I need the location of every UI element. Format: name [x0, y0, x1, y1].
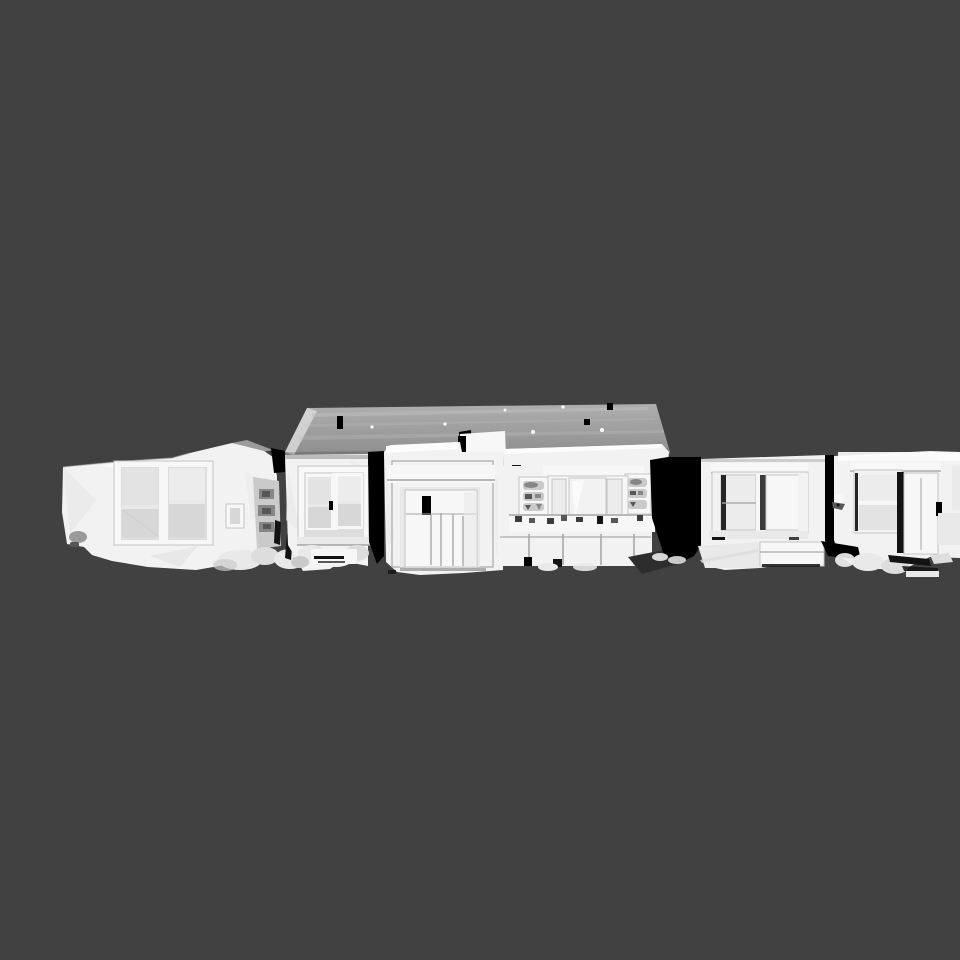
planter-mark [576, 517, 583, 522]
wall-top-edge [701, 459, 827, 462]
pane-dark-edge [760, 475, 766, 530]
door-shade [464, 492, 477, 567]
rubble [291, 556, 309, 568]
mesh-crevice [274, 520, 281, 545]
rubble [852, 553, 884, 571]
rubble [573, 563, 597, 571]
door-groove [430, 515, 432, 565]
window-sash-bar [122, 505, 158, 509]
rubble [906, 571, 939, 577]
shutter-ornament [630, 479, 642, 485]
door-window [422, 496, 431, 515]
shutter-ornament [524, 482, 538, 488]
door-groove [452, 514, 454, 566]
window-pane [169, 468, 205, 500]
window-pane [308, 477, 331, 504]
rubble [538, 563, 558, 571]
mesh-blob [69, 531, 87, 543]
wall-edge-piece [941, 461, 952, 508]
bench-seam [760, 551, 824, 553]
roof-vent-shadow [337, 416, 343, 429]
window-pane [766, 475, 799, 530]
bench [760, 542, 824, 566]
planter-mark [637, 515, 643, 521]
small-window-pane [230, 508, 240, 524]
door-groove [440, 513, 442, 566]
mesh-crevice [524, 557, 532, 566]
window-pane [859, 475, 897, 501]
planter-mark [529, 518, 535, 523]
door-groove [462, 516, 464, 566]
window-sidelight [607, 479, 622, 520]
right-house-2 [821, 451, 960, 577]
threshold-shadow [400, 568, 486, 571]
shutter-cutout [628, 500, 647, 509]
panel-seam [500, 536, 651, 538]
roof-speck [561, 405, 564, 408]
rubble [930, 553, 953, 564]
fascia-highlight [838, 452, 960, 461]
window-sidelight [552, 479, 566, 520]
rubble [668, 556, 686, 564]
bench-shadow [314, 556, 344, 559]
pane-dark-edge [855, 473, 858, 531]
right-house-1 [698, 455, 834, 570]
shutter-ornament [638, 491, 643, 495]
shutter-ornament [525, 494, 532, 499]
pane-hole [329, 501, 333, 510]
mesh-shadow [388, 570, 396, 574]
porch-lamp [834, 494, 844, 504]
roof-speck [370, 425, 373, 428]
panel-seam [562, 534, 564, 565]
planter-mark [515, 516, 522, 522]
entry-door-section [384, 431, 506, 575]
wall-edge-piece [938, 513, 960, 545]
rubble [652, 553, 668, 561]
window-pane [338, 476, 361, 501]
mesh-render [0, 0, 960, 960]
roof-speck [531, 430, 535, 434]
sill-shadow [712, 537, 725, 540]
window-pane [338, 504, 361, 526]
window-pane [308, 507, 331, 528]
window-sash-bar [722, 502, 756, 504]
window-sill [297, 537, 370, 545]
window-sash-bar [169, 500, 205, 504]
flower-box-edge [509, 514, 655, 516]
planter-mark [597, 516, 603, 524]
door-groove [920, 478, 922, 550]
roof-vent-shadow [584, 419, 590, 425]
shutter-ornament [535, 494, 541, 498]
debris-hole-dark [263, 524, 271, 529]
debris-hole-dark [262, 491, 270, 497]
shutter-ornament [630, 491, 636, 495]
rubble [213, 559, 237, 571]
3d-viewport[interactable] [0, 0, 960, 960]
window-pane [859, 505, 897, 530]
window-frame-side [798, 473, 808, 532]
bay-window-section [498, 444, 701, 574]
mesh-shadow [70, 542, 79, 547]
debris-hole-dark [262, 508, 271, 514]
header-shadow-line [387, 479, 495, 481]
planter-mark [561, 515, 567, 521]
bench-shadow [318, 561, 345, 563]
window-sash-bar [308, 504, 331, 507]
window-sash-bar [338, 501, 361, 504]
panel-seam [600, 534, 602, 565]
eave-shadow-line [285, 455, 368, 459]
rubble [835, 553, 855, 567]
window-sash-bar [859, 501, 897, 505]
sill-shadow [789, 537, 799, 540]
bench-shadow [762, 564, 820, 567]
porch-lamp-detail [837, 504, 840, 507]
window-pane [122, 468, 158, 505]
planter-mark [611, 518, 618, 523]
wall-edge-piece [952, 466, 960, 510]
roof-speck [600, 428, 604, 432]
roof-speck [443, 422, 446, 425]
window-pane [169, 504, 205, 537]
window-mullion [159, 467, 168, 540]
planter-mark [547, 518, 554, 524]
roof-vent-shadow [607, 403, 613, 410]
shadow-gap [897, 472, 904, 553]
roof-speck [504, 409, 507, 412]
